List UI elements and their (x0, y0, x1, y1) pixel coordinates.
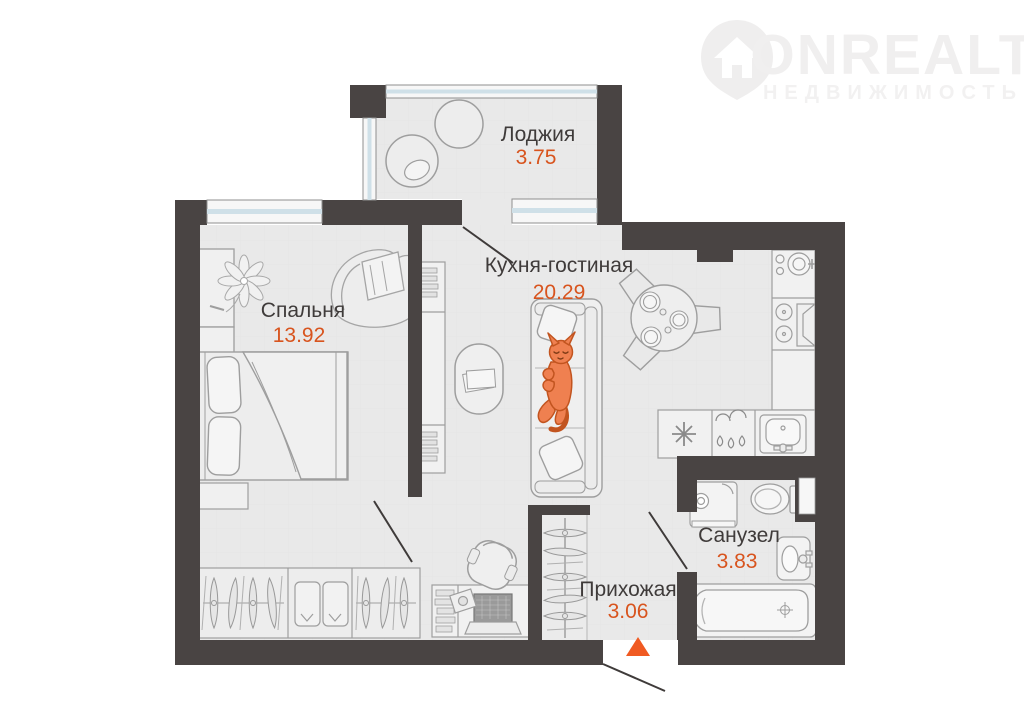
room-area-bedroom: 13.92 (273, 324, 326, 347)
loggia-top-window (386, 85, 597, 98)
wall-bedroom-divider (408, 225, 422, 497)
entrance-door-swing (603, 664, 665, 691)
bathroom-sink (777, 537, 812, 580)
nightstand (198, 483, 248, 509)
bedroom-window (207, 200, 322, 223)
wall-closet-top (528, 505, 590, 515)
bed (197, 352, 348, 480)
watermark-logo: ONREALT НЕДВИЖИМОСТЬ (701, 20, 1024, 104)
watermark-subtitle-text: НЕДВИЖИМОСТЬ (763, 82, 1023, 104)
wall-closet-left (528, 505, 542, 640)
kitchen-loggia-window (512, 199, 597, 223)
room-label-loggia: Лоджия (501, 123, 575, 146)
desk (432, 585, 530, 637)
room-label-kitchen-living: Кухня-гостиная (485, 254, 634, 277)
loggia-table (435, 100, 483, 148)
room-area-kitchen-living: 20.29 (533, 281, 586, 304)
kitchen-lower-counter (658, 410, 815, 458)
duct-niche-inner (799, 478, 815, 514)
room-area-hallway: 3.06 (608, 600, 649, 623)
loggia-door-gap-floor (462, 198, 512, 226)
room-label-hallway: Прихожая (579, 578, 676, 601)
wall-bathroom-top (680, 456, 815, 480)
bathtub (690, 584, 816, 637)
room-label-bathroom: Санузел (698, 524, 780, 547)
room-area-loggia: 3.75 (516, 146, 557, 169)
wall-loggia-corner (350, 85, 386, 118)
wall-top-b (322, 200, 462, 225)
wall-left (175, 200, 200, 665)
floor-plan-page: ONREALT НЕДВИЖИМОСТЬ (0, 0, 1024, 718)
watermark-brand-text: ONREALT (750, 23, 1024, 87)
wall-bathroom-left-lower (677, 572, 697, 640)
kitchen-counter (772, 250, 815, 410)
washing-machine (690, 482, 737, 527)
wall-bathroom-left-upper (677, 456, 697, 512)
bedroom-wardrobe (197, 568, 420, 638)
floor-plan-svg: ONREALT НЕДВИЖИМОСТЬ (0, 0, 1024, 718)
room-area-bathroom: 3.83 (717, 550, 758, 573)
wall-kitchen-top (622, 222, 845, 250)
wall-loggia-right (597, 85, 622, 225)
counter-sink (760, 415, 806, 453)
loggia-left-window (363, 118, 376, 200)
wall-bottom-left (175, 640, 603, 665)
room-label-bedroom: Спальня (261, 299, 345, 322)
wall-bottom-right (678, 640, 845, 665)
coffee-pouf (455, 344, 503, 414)
wall-vent-stub (697, 250, 733, 262)
wall-right (815, 222, 845, 665)
